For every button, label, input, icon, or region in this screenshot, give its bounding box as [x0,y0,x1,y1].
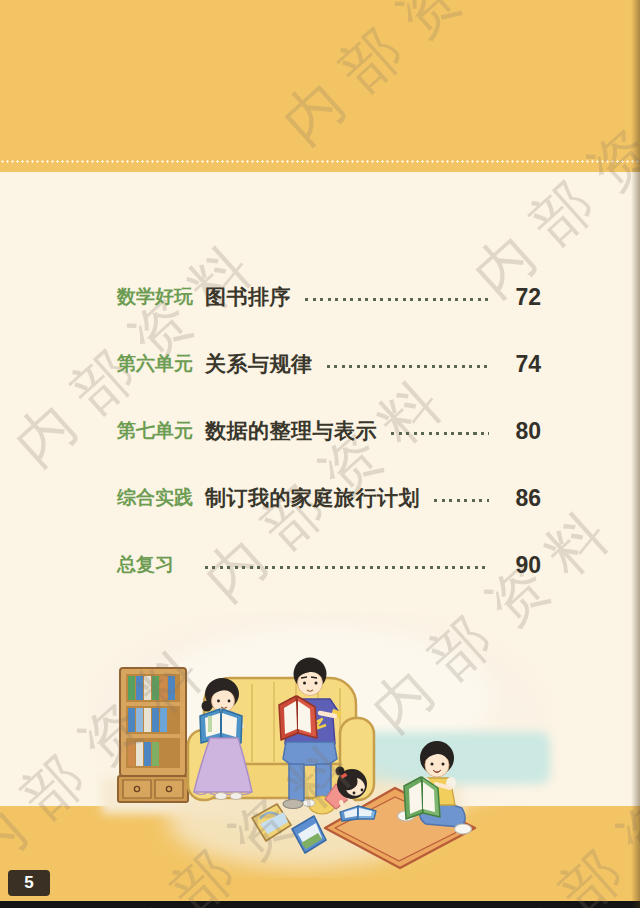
toc-section-label: 数学好玩 [117,284,205,310]
toc-page-number: 72 [501,284,541,311]
dot-leader [205,566,489,569]
toc-section-label: 综合实践 [117,485,205,511]
toc-section-label: 第六单元 [117,351,205,377]
toc-page-number: 90 [501,552,541,579]
dot-leader [327,365,490,368]
illustration-family-reading [88,612,558,878]
toc-page-number: 74 [501,351,541,378]
toc-row: 综合实践 制订我的家庭旅行计划 86 [117,483,541,513]
bottom-black-strip [0,901,640,908]
table-of-contents: 数学好玩 图书排序 72 第六单元 关系与规律 74 第七单元 数据的整理与表示… [117,282,541,617]
toc-row: 第七单元 数据的整理与表示 80 [117,416,541,446]
toc-chapter-title: 制订我的家庭旅行计划 [205,484,420,512]
page-number-badge: 5 [8,870,50,896]
textbook-toc-page: { "page": { "number_badge": "5", "waterm… [0,0,640,908]
dot-leader [391,432,489,435]
toc-section-label: 总复习 [117,552,205,578]
toc-section-label: 第七单元 [117,418,205,444]
toc-chapter-title: 图书排序 [205,283,291,311]
bookshelf [118,668,188,802]
toc-page-number: 80 [501,418,541,445]
toc-page-number: 86 [501,485,541,512]
toc-row: 第六单元 关系与规律 74 [117,349,541,379]
top-gold-band [0,0,640,172]
toc-row: 数学好玩 图书排序 72 [117,282,541,312]
toc-chapter-title: 数据的整理与表示 [205,417,377,445]
dot-leader [305,298,489,301]
toc-chapter-title: 关系与规律 [205,350,313,378]
dotted-divider [0,160,640,163]
page-edge-shadow [631,0,640,908]
toc-row: 总复习 90 [117,550,541,580]
dot-leader [434,499,489,502]
